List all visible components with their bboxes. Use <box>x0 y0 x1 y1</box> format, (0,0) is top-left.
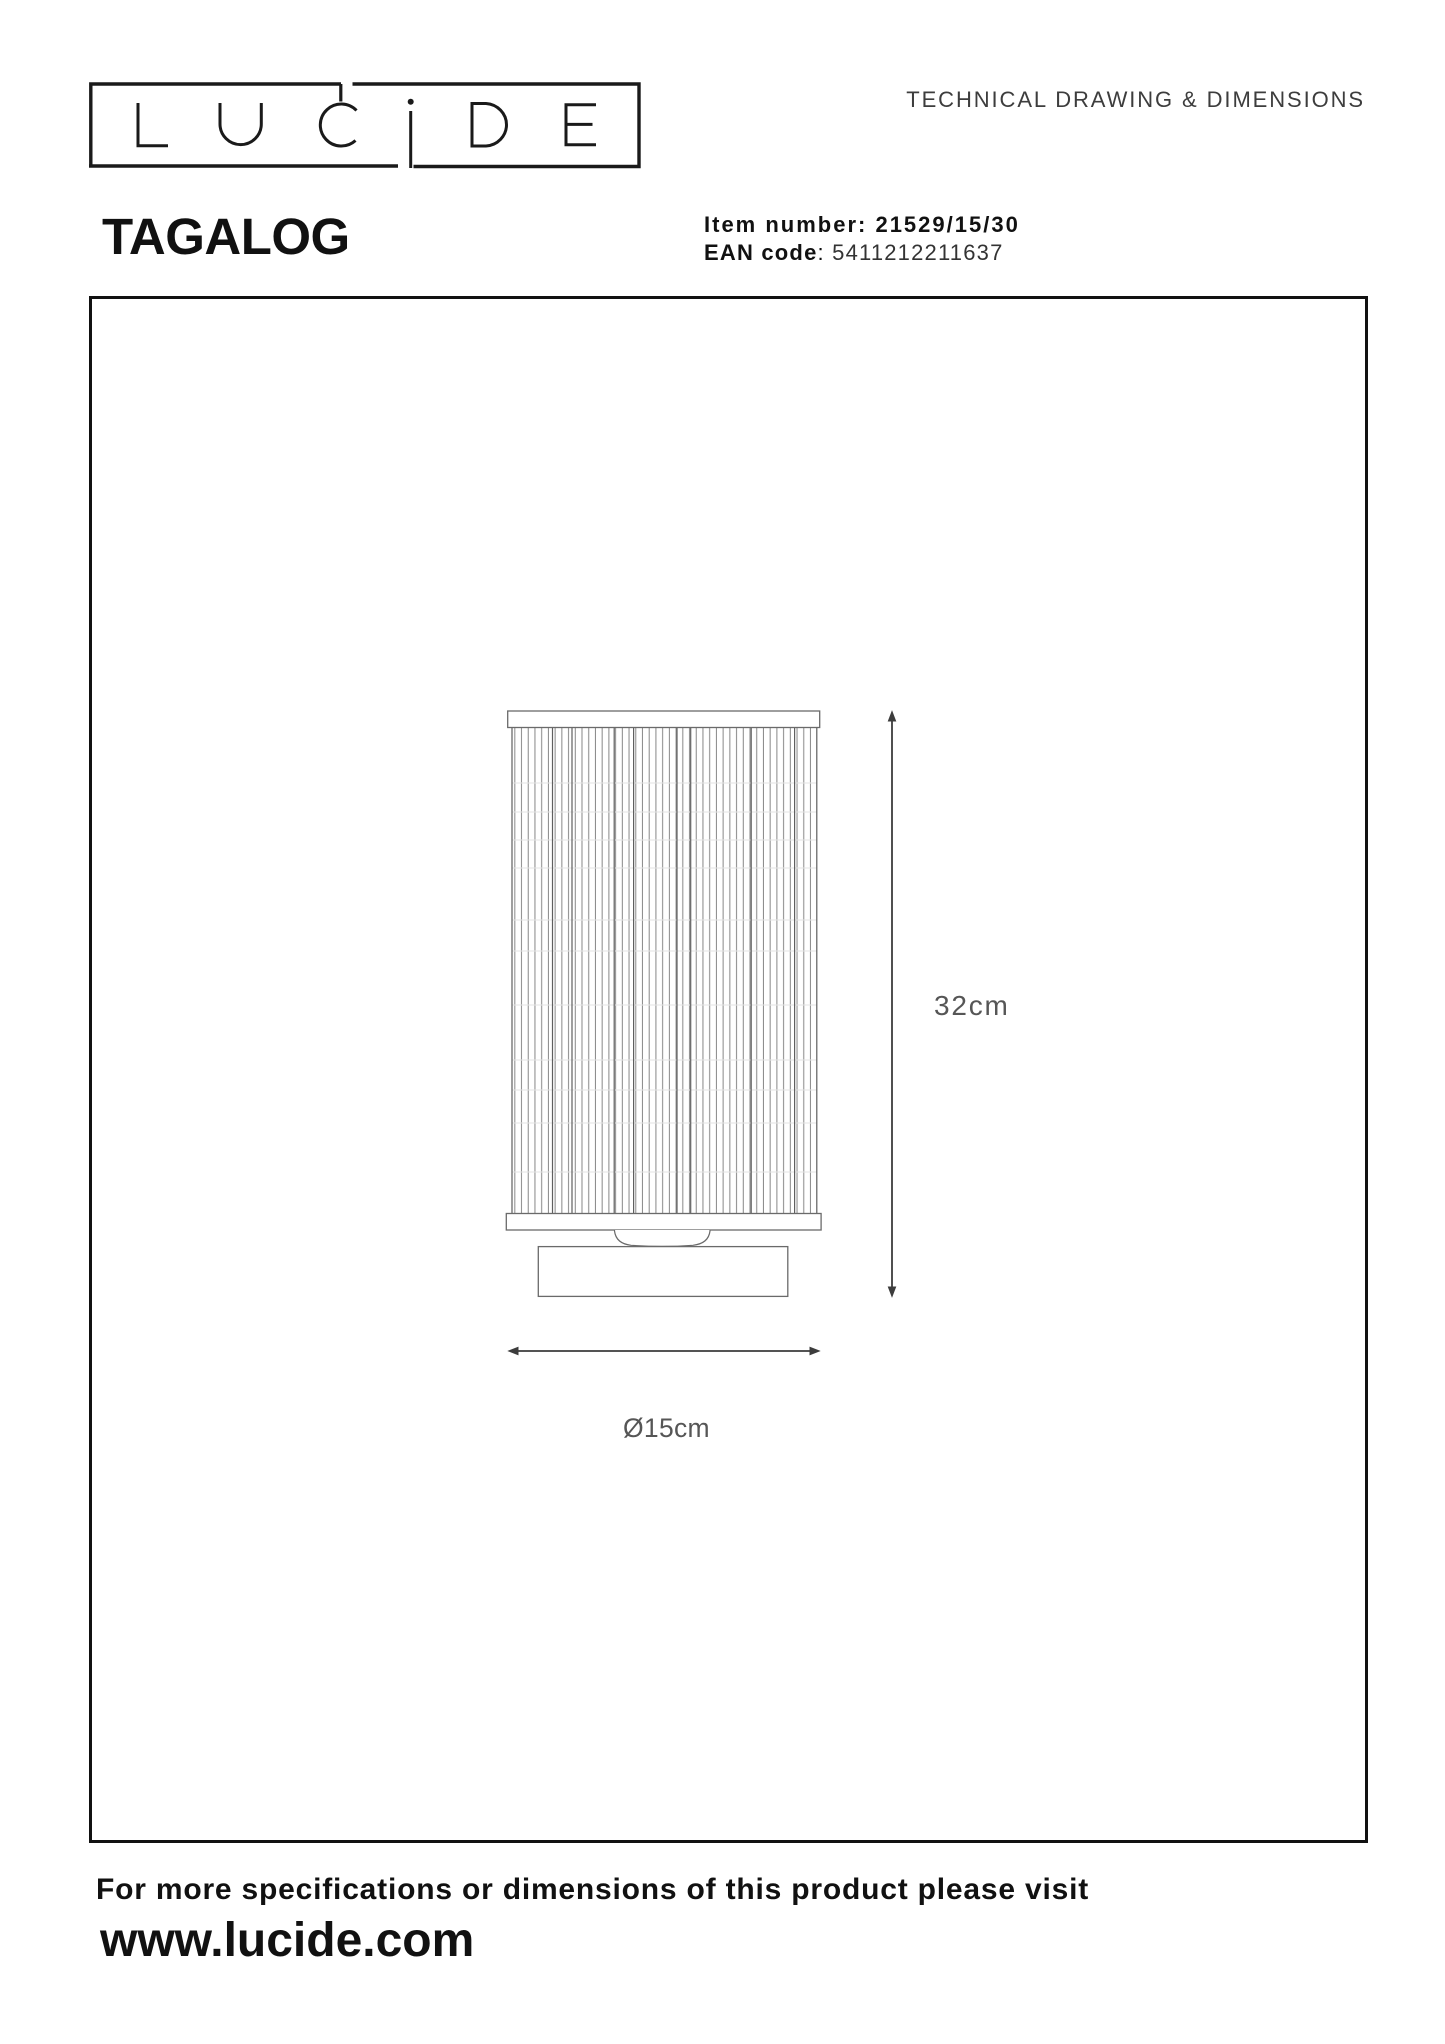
svg-text:Ø15cm: Ø15cm <box>623 1413 710 1443</box>
svg-text:32cm: 32cm <box>934 990 1010 1021</box>
